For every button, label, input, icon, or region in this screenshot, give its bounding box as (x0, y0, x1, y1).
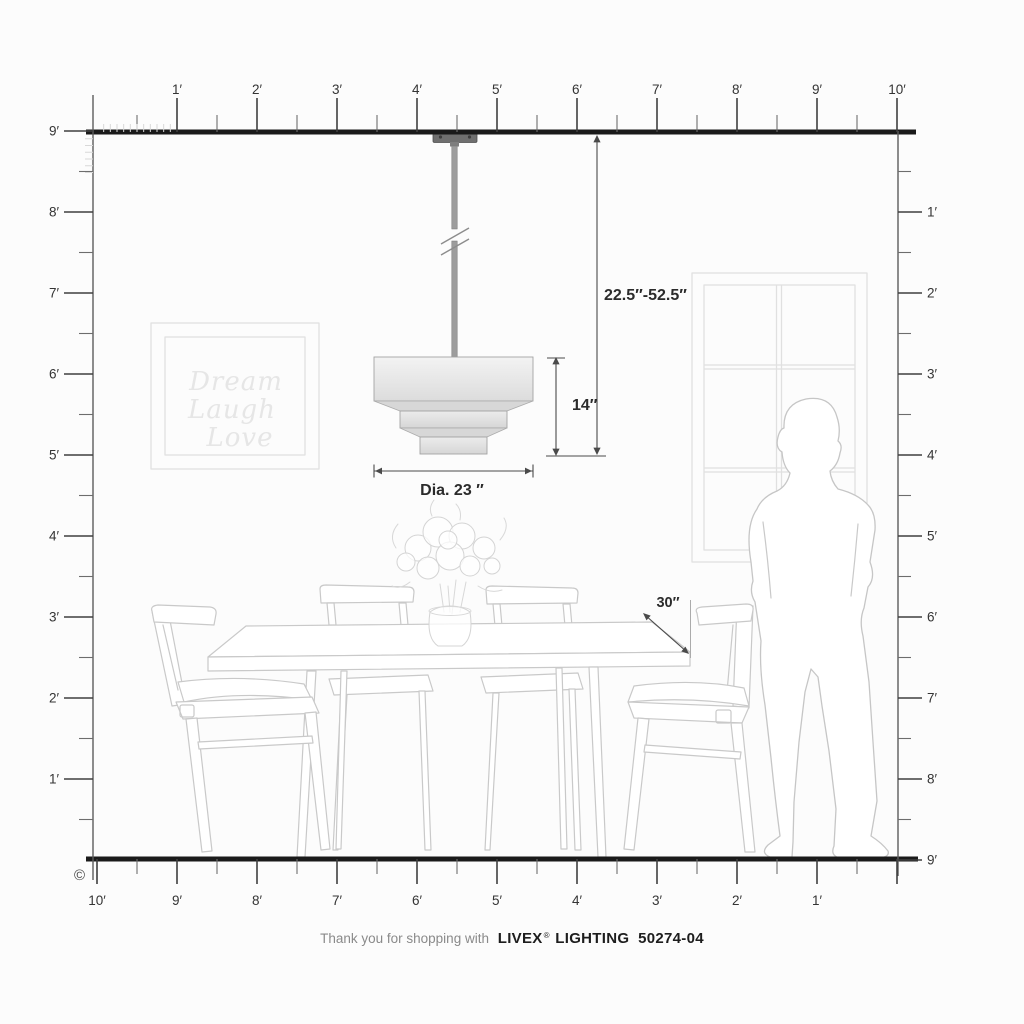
bottom-ruler-label: 4′ (572, 893, 583, 908)
copyright-symbol: © (74, 867, 85, 884)
vase (429, 606, 471, 646)
bottom-ruler-label: 7′ (332, 893, 343, 908)
arrowhead-icon (375, 468, 382, 475)
footer-model-number: 50274-04 (638, 930, 704, 947)
suspension-range-label: 22.5″-52.5″ (604, 287, 687, 304)
diagram-svg: Dream Laugh Love (0, 0, 1024, 1024)
top-ruler-label: 8′ (732, 82, 743, 97)
fixture-height-label: 14″ (572, 397, 598, 414)
picture-frame: Dream Laugh Love (151, 323, 319, 469)
right-ruler-label: 5′ (927, 529, 938, 544)
right-ruler-label: 9′ (927, 853, 938, 868)
bottom-ruler-label: 5′ (492, 893, 503, 908)
right-ruler-label: 7′ (927, 691, 938, 706)
shade-tier-top-underside (374, 401, 533, 411)
top-ruler-label: 4′ (412, 82, 423, 97)
left-ruler-label: 1′ (49, 772, 60, 787)
bottom-ruler-label: 2′ (732, 893, 743, 908)
chair-post (493, 604, 502, 626)
chair-back-rail (486, 586, 578, 604)
bottom-ruler-label: 10′ (88, 893, 106, 908)
product-dimension-diagram: Dream Laugh Love (0, 0, 1024, 1024)
bottom-ruler-label: 8′ (252, 893, 263, 908)
chair-leg (569, 689, 581, 850)
chair-leg (186, 718, 212, 852)
flower-leaf (500, 518, 506, 540)
flower-bloom (397, 553, 415, 571)
bottom-ruler-label: 1′ (812, 893, 823, 908)
fixture-diameter-label: Dia. 23 ″ (420, 482, 484, 499)
top-ruler-label: 7′ (652, 82, 663, 97)
downrod-upper (452, 146, 457, 229)
downrod-lower (452, 241, 457, 357)
shade-tier-middle (400, 411, 507, 428)
right-ruler-label: 1′ (927, 205, 938, 220)
left-ruler-label: 2′ (49, 691, 60, 706)
flower-bloom (484, 558, 500, 574)
bottom-ruler-label: 9′ (172, 893, 183, 908)
left-ruler-label: 9′ (49, 124, 60, 139)
top-ruler-label: 3′ (332, 82, 343, 97)
top-ruler-label: 6′ (572, 82, 583, 97)
chair-leg (419, 691, 431, 850)
footer-product-line: LIGHTING (555, 930, 629, 947)
flower-leaf (430, 500, 434, 516)
registered-mark-icon: ® (544, 931, 550, 940)
right-ruler-label: 8′ (927, 772, 938, 787)
chair-back-rail (696, 604, 753, 625)
arrowhead-icon (593, 135, 600, 142)
arrowhead-icon (552, 449, 559, 456)
canopy-screw (439, 135, 442, 138)
right-ruler-label: 6′ (927, 610, 938, 625)
left-ruler-label: 5′ (49, 448, 60, 463)
left-ruler-label: 6′ (49, 367, 60, 382)
chair-seat (481, 673, 583, 693)
top-ruler-label: 9′ (812, 82, 823, 97)
chair-leg (624, 718, 649, 850)
chair-stretcher (198, 736, 313, 749)
right-ruler-label: 4′ (927, 448, 938, 463)
chair-back-rail (152, 605, 217, 625)
chair-post (399, 603, 408, 625)
shade-tier-top (374, 357, 533, 401)
chair-seat (176, 697, 319, 719)
shade-tier-bottom (420, 437, 487, 454)
table-leg (556, 668, 567, 849)
left-ruler-label: 8′ (49, 205, 60, 220)
left-ruler-label: 3′ (49, 610, 60, 625)
bottom-ruler-label: 6′ (412, 893, 423, 908)
flower-bloom (460, 556, 480, 576)
top-ruler-label: 5′ (492, 82, 503, 97)
arrowhead-icon (593, 448, 600, 455)
flower-bloom (417, 557, 439, 579)
canopy-screw (468, 135, 471, 138)
table-leg (589, 667, 606, 857)
arrowhead-icon (525, 468, 532, 475)
flower-bloom (439, 531, 457, 549)
footer: Thank you for shopping with LIVEX® LIGHT… (0, 930, 1024, 947)
right-ruler-label: 2′ (927, 286, 938, 301)
chair-post (327, 603, 336, 625)
top-ruler-label: 2′ (252, 82, 263, 97)
shade-tier-middle-underside (400, 428, 507, 437)
chair-leg (731, 723, 755, 852)
pendant-fixture (374, 132, 533, 455)
top-ruler-label: 10′ (888, 82, 906, 97)
wall-art-word-3: Love (206, 423, 274, 453)
flower-bloom (473, 537, 495, 559)
flower-leaf (456, 504, 461, 520)
bottom-ruler-label: 3′ (652, 893, 663, 908)
chair-back-slat (727, 625, 733, 692)
left-ruler-label: 4′ (49, 529, 60, 544)
wall-art-word-1: Dream (188, 367, 283, 397)
footer-brand: LIVEX (498, 930, 543, 947)
chair-stretcher (644, 745, 741, 759)
top-ruler-label: 1′ (172, 82, 183, 97)
right-ruler-label: 3′ (927, 367, 938, 382)
left-ruler-label: 7′ (49, 286, 60, 301)
chair-leg (485, 693, 499, 850)
wall-art-word-2: Laugh (187, 395, 276, 425)
footer-thanks-text: Thank you for shopping with (320, 931, 489, 946)
chair-back-rail (320, 585, 414, 603)
flower-leaf (392, 524, 398, 548)
table-surface-label: 30″ (656, 595, 679, 611)
